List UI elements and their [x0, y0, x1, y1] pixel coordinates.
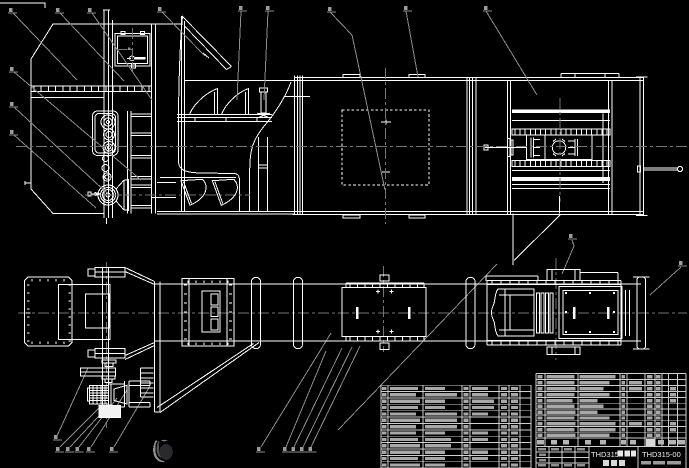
svg-text:THD315: THD315 — [591, 450, 619, 459]
svg-text:THD315-00: THD315-00 — [642, 450, 681, 459]
